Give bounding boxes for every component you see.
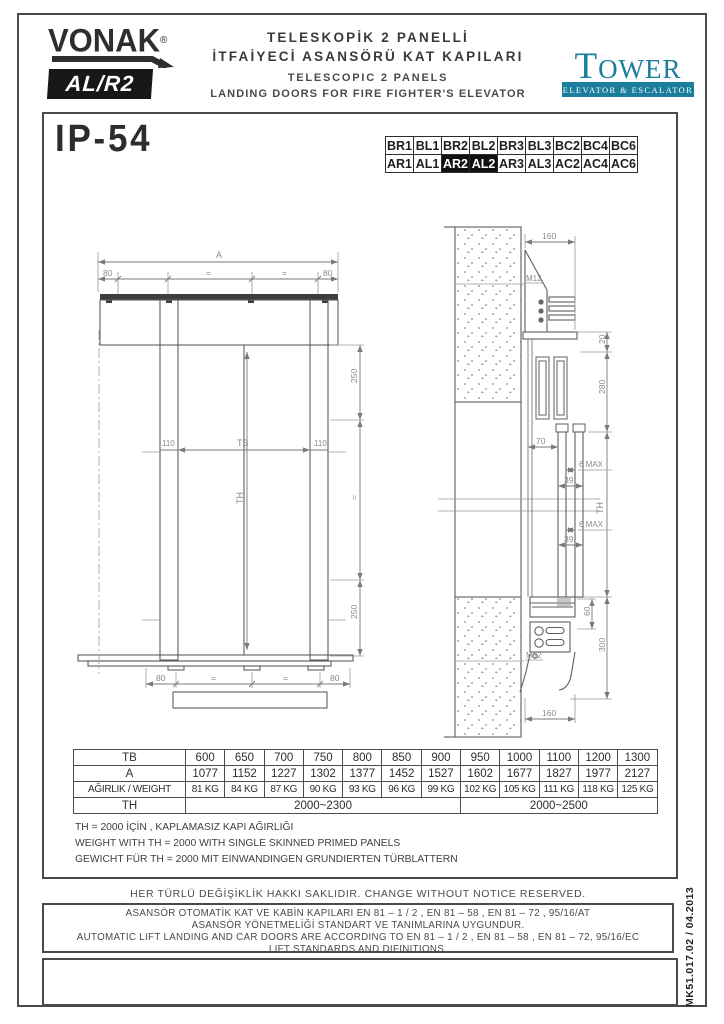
table-cell: 750: [303, 750, 342, 766]
title-english-line1: TELESCOPIC 2 PANELS: [175, 72, 561, 84]
dim-label-6max-upper: 6 MAX: [579, 460, 604, 469]
dim-label-280: 280: [597, 380, 607, 394]
door-code-grid: BR1BL1BR2BL2BR3BL3BC2BC4BC6AR1AL1AR2AL2A…: [385, 136, 638, 173]
title-turkish-line2: İTFAİYECİ ASANSÖRÜ KAT KAPILARI: [175, 47, 561, 66]
code-cell-bl2: BL2: [470, 137, 498, 155]
top-track-plate: [100, 294, 338, 300]
dim-label-80-top-right: 80: [323, 268, 333, 278]
dim-label-eq-top-1: =: [206, 268, 211, 278]
dimension-table: TB60065070075080085090095010001100120013…: [73, 749, 658, 814]
dim-label-eq-right: =: [349, 495, 359, 500]
section-view-drawing: 160 M12 20 280 TH 300: [420, 212, 675, 760]
dim-label-20: 20: [597, 334, 607, 344]
tower-tagline: ELEVATOR & ESCALATOR: [562, 82, 694, 97]
table-cell: 2127: [618, 766, 657, 782]
ip-rating-label: IP-54: [55, 118, 152, 161]
code-cell-br1: BR1: [386, 137, 414, 155]
bracket-bolts: [538, 299, 543, 322]
standards-line-3: AUTOMATIC LIFT LANDING AND CAR DOORS ARE…: [44, 932, 672, 944]
table-cell: 850: [382, 750, 421, 766]
dim-label-160-top: 160: [542, 231, 556, 241]
table-cell: 93 KG: [343, 782, 382, 798]
table-cell: 650: [225, 750, 264, 766]
dim-label-110-right: 110: [314, 439, 327, 448]
row-header: AĞIRLIK / WEIGHT: [74, 782, 186, 798]
table-cell: 1000: [500, 750, 539, 766]
dim-label-eq-top-2: =: [282, 268, 287, 278]
table-cell: 1527: [421, 766, 460, 782]
model-badge: AL/R2: [47, 69, 153, 99]
row-header: A: [74, 766, 186, 782]
code-cell-br3: BR3: [498, 137, 526, 155]
dim-label-250-bottom: 250: [349, 605, 359, 619]
table-cell: 1302: [303, 766, 342, 782]
change-notice: HER TÜRLÜ DEĞİŞİKLİK HAKKI SAKLIDIR. CHA…: [42, 888, 674, 900]
table-cell: 125 KG: [618, 782, 657, 798]
code-cell-ac4: AC4: [582, 155, 610, 173]
toe-guard-apron: [559, 652, 575, 690]
title-english-line2: LANDING DOORS FOR FIRE FIGHTER'S ELEVATO…: [175, 88, 561, 100]
table-cell: 1977: [578, 766, 617, 782]
dim-label-80-top-left: 80: [103, 268, 113, 278]
table-cell: 700: [264, 750, 303, 766]
tower-logo: TOWER ELEVATOR & ESCALATOR: [562, 52, 694, 97]
document-code-vertical: MK51.017.02 / 04.2013: [684, 845, 702, 1007]
code-cell-ac6: AC6: [610, 155, 638, 173]
note-line-de: GEWICHT FÜR TH = 2000 MIT EINWANDINGEN G…: [75, 852, 458, 868]
dim-label-110-left: 110: [162, 439, 175, 448]
header-box: [100, 300, 338, 345]
title-turkish-line1: TELESKOPİK 2 PANELLİ: [175, 28, 561, 47]
standards-line-1: ASANSÖR OTOMATİK KAT VE KABİN KAPILARI E…: [44, 908, 672, 920]
table-cell: 1827: [539, 766, 578, 782]
concrete-wall-lower: [455, 597, 521, 737]
vonak-wordmark: VONAK®: [48, 25, 178, 57]
dim-label-th-section: TH: [595, 502, 605, 514]
table-cell: 81 KG: [186, 782, 225, 798]
tower-wordmark: TOWER: [562, 52, 694, 84]
table-notes: TH = 2000 İÇİN , KAPLAMASIZ KAPI AĞIRLIĞ…: [75, 820, 458, 868]
code-cell-ar3: AR3: [498, 155, 526, 173]
code-cell-bl1: BL1: [414, 137, 442, 155]
table-cell: 102 KG: [461, 782, 500, 798]
note-line-tr: TH = 2000 İÇİN , KAPLAMASIZ KAPI AĞIRLIĞ…: [75, 820, 458, 836]
table-cell: 1100: [539, 750, 578, 766]
table-cell: 90 KG: [303, 782, 342, 798]
table-cell: 950: [461, 750, 500, 766]
code-cell-br2: BR2: [442, 137, 470, 155]
table-cell: 105 KG: [500, 782, 539, 798]
dim-label-60: 60: [582, 606, 592, 616]
table-cell: 800: [343, 750, 382, 766]
dim-label-300: 300: [597, 638, 607, 652]
code-cell-bc6: BC6: [610, 137, 638, 155]
dim-label-eq-bottom-1: =: [211, 673, 216, 683]
table-cell: 1200: [578, 750, 617, 766]
header-bracket: [523, 250, 577, 339]
code-cell-ac2: AC2: [554, 155, 582, 173]
table-cell: 1677: [500, 766, 539, 782]
table-cell: 99 KG: [421, 782, 460, 798]
note-line-en: WEIGHT WITH TH = 2000 WITH SINGLE SKINNE…: [75, 836, 458, 852]
right-jamb: [310, 300, 328, 660]
registered-mark: ®: [160, 35, 167, 47]
row-header: TH: [74, 798, 186, 814]
dim-label-160-bottom: 160: [542, 708, 556, 718]
table-cell: 1452: [382, 766, 421, 782]
sill-support-box: [173, 692, 327, 708]
code-cell-bl3: BL3: [526, 137, 554, 155]
dim-label-6max-lower: 6 MAX: [579, 520, 604, 529]
dim-label-70: 70: [536, 436, 546, 446]
table-cell: 87 KG: [264, 782, 303, 798]
table-cell: 1300: [618, 750, 657, 766]
table-cell: 1377: [343, 766, 382, 782]
hanger-tracks: [536, 357, 585, 432]
table-cell: 96 KG: [382, 782, 421, 798]
code-cell-ar1: AR1: [386, 155, 414, 173]
code-cell-al3: AL3: [526, 155, 554, 173]
anchor-label-m12-top: M12: [526, 274, 542, 283]
table-cell: 1077: [186, 766, 225, 782]
table-cell: 118 KG: [578, 782, 617, 798]
left-jamb: [160, 300, 178, 660]
row-header: TB: [74, 750, 186, 766]
table-cell: 1227: [264, 766, 303, 782]
dim-label-80-bottom-left: 80: [156, 673, 166, 683]
standards-line-4: LIFT STANDARDS AND DIFINITIONS.: [44, 944, 672, 956]
empty-footer-box: [42, 958, 678, 1006]
table-cell: 600: [186, 750, 225, 766]
dim-label-eq-bottom-2: =: [283, 673, 288, 683]
code-cell-al1: AL1: [414, 155, 442, 173]
code-cell-al2: AL2: [470, 155, 498, 173]
dim-label-39-upper: 39: [564, 475, 574, 485]
table-cell: 111 KG: [539, 782, 578, 798]
table-cell: 1602: [461, 766, 500, 782]
datasheet-page: VONAK® AL/R2 TELESKOPİK 2 PANELLİ İTFAİY…: [0, 0, 724, 1024]
document-titles: TELESKOPİK 2 PANELLİ İTFAİYECİ ASANSÖRÜ …: [175, 28, 561, 100]
dim-label-80-bottom-right: 80: [330, 673, 340, 683]
vonak-logo: VONAK® AL/R2: [48, 26, 178, 99]
table-cell: 2000~2300: [186, 798, 461, 814]
table-cell: 900: [421, 750, 460, 766]
dim-label-250-top: 250: [349, 369, 359, 383]
standards-box: ASANSÖR OTOMATİK KAT VE KABİN KAPILARI E…: [42, 903, 674, 953]
concrete-wall-upper: [455, 227, 521, 402]
front-view-drawing: A 80 = = 80 110 TB 110 TH: [58, 232, 393, 757]
door-panels-section: [558, 432, 583, 597]
standards-line-2: ASANSÖR YÖNETMELİĞİ STANDART VE TANIMLAR…: [44, 920, 672, 932]
code-cell-ar2: AR2: [442, 155, 470, 173]
table-cell: 84 KG: [225, 782, 264, 798]
code-cell-bc4: BC4: [582, 137, 610, 155]
dimension-table-body: TB60065070075080085090095010001100120013…: [74, 750, 658, 814]
dim-label-39-lower: 39: [564, 534, 574, 544]
code-cell-bc2: BC2: [554, 137, 582, 155]
code-grid-body: BR1BL1BR2BL2BR3BL3BC2BC4BC6AR1AL1AR2AL2A…: [386, 137, 638, 173]
dim-label-a: A: [216, 250, 222, 260]
table-cell: 2000~2500: [461, 798, 657, 814]
table-cell: 1152: [225, 766, 264, 782]
dim-label-th: TH: [235, 492, 245, 504]
